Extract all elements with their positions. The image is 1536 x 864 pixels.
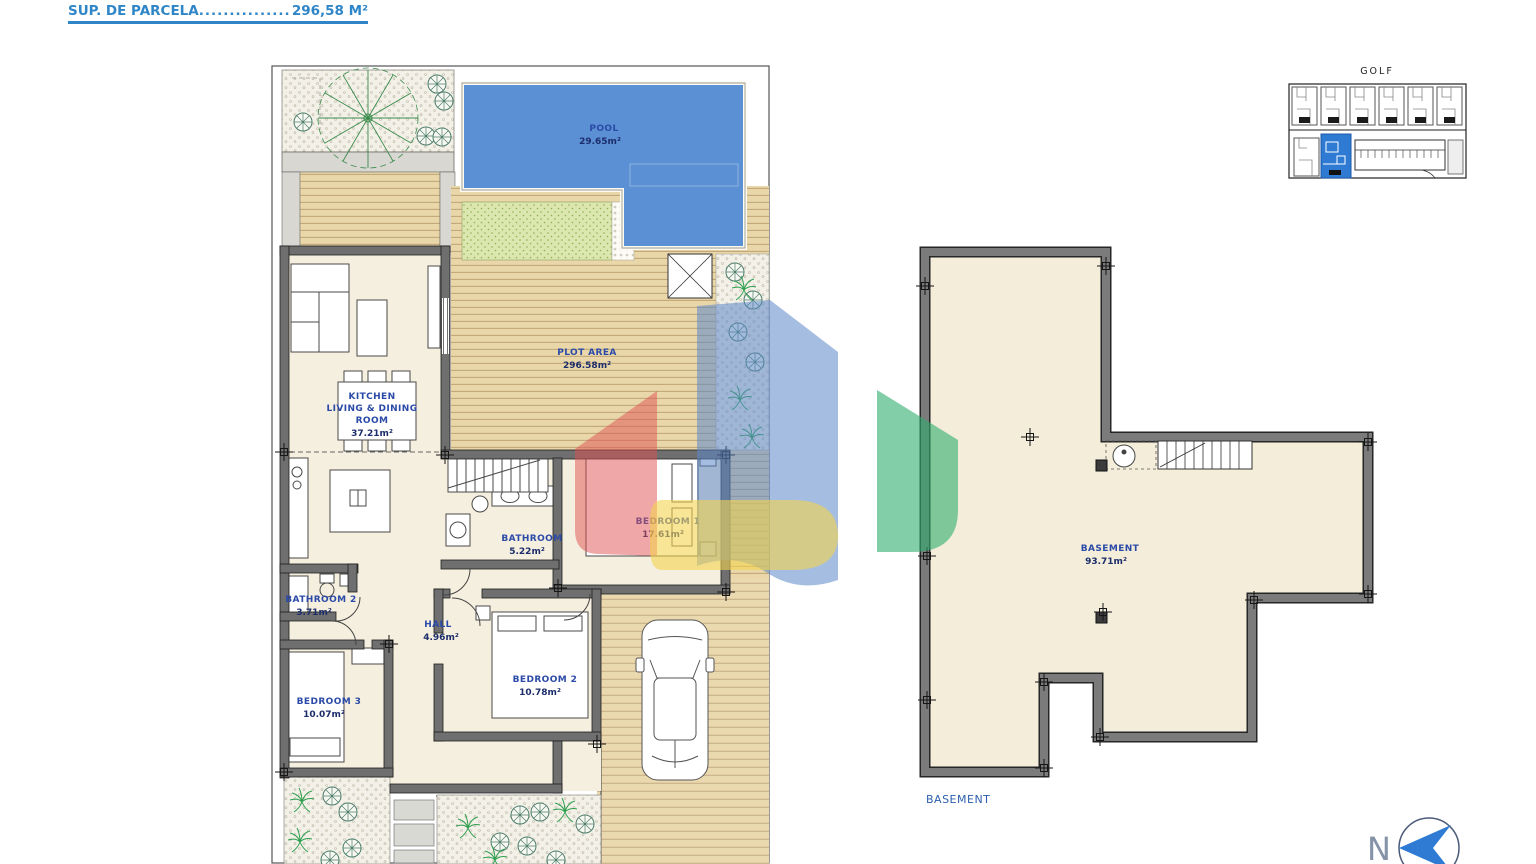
plot-area-value: 296.58m² xyxy=(563,361,611,371)
header-line2: SUP. DE PARCELA ........................… xyxy=(68,3,368,19)
bedroom2-area: 10.78m² xyxy=(519,688,561,698)
bush-icon xyxy=(294,113,312,131)
hall-label: HALL xyxy=(424,620,452,630)
kitchen-label-1: KITCHEN xyxy=(348,392,395,402)
pillar xyxy=(1096,460,1107,471)
north-arrow: N xyxy=(1365,798,1490,864)
bush-icon xyxy=(433,128,451,146)
golf-site-inset: GOLF xyxy=(1285,60,1470,185)
kitchen-label-3: ROOM xyxy=(356,416,389,426)
bathroom1-area: 5.22m² xyxy=(509,547,545,557)
tv-bench xyxy=(428,266,440,348)
header-parcela-label: SUP. DE PARCELA xyxy=(68,3,199,19)
pool-label: POOL xyxy=(589,124,618,134)
kitchen-area: 37.21m² xyxy=(351,429,393,439)
upper-terrace xyxy=(282,172,455,252)
bedroom1-bed xyxy=(586,452,716,556)
bathroom1-label: BATHROOM xyxy=(501,534,562,544)
bush-icon xyxy=(417,127,435,145)
golf-inset-title: GOLF xyxy=(1360,66,1394,77)
outdoor-shower xyxy=(668,254,712,298)
basement-plan: BASEMENT 93.71m² BASEMENT xyxy=(895,225,1425,825)
front-garden xyxy=(282,68,454,172)
bathroom2-label: BATHROOM 2 xyxy=(285,595,356,605)
lawn xyxy=(462,202,634,260)
kitchen-label-2: LIVING & DINING xyxy=(326,404,417,414)
bush-icon xyxy=(435,92,453,110)
basement-outline xyxy=(925,252,1368,772)
plot-area-label: PLOT AREA xyxy=(557,348,617,358)
plot-area-header: PLOT AREA/ SUP. DE PARCELA .............… xyxy=(68,0,368,24)
coffee-table xyxy=(357,300,387,356)
bedroom2-bed xyxy=(476,606,588,718)
basement-stairs xyxy=(1106,441,1252,469)
ground-floor-plan: POOL 29.65m² PLOT AREA 296.58m² KITCHEN … xyxy=(268,60,776,864)
header-dots: .............................. xyxy=(199,3,292,19)
bedroom1-area: 17.61m² xyxy=(642,530,684,540)
pillar xyxy=(1096,612,1107,623)
bedroom1-label: BEDROOM 1 xyxy=(636,517,701,527)
sofa xyxy=(291,264,349,352)
side-garden xyxy=(716,254,769,450)
floor-plan-sheet: PLOT AREA/ SUP. DE PARCELA .............… xyxy=(0,0,1536,864)
pool-area: 29.65m² xyxy=(579,137,621,147)
header-parcela-value: 296,58 M² xyxy=(292,3,368,19)
bedroom2-label: BEDROOM 2 xyxy=(513,675,578,685)
basement-caption: BASEMENT xyxy=(926,793,990,806)
bedroom3-label: BEDROOM 3 xyxy=(297,697,362,707)
bathroom2-area: 3.71m² xyxy=(296,608,332,618)
car xyxy=(636,620,714,780)
north-letter: N xyxy=(1367,830,1391,864)
bedroom3-area: 10.07m² xyxy=(303,710,345,720)
basement-label: BASEMENT xyxy=(1081,544,1140,554)
hall-area: 4.96m² xyxy=(423,633,459,643)
bush-icon xyxy=(428,75,446,93)
stairs xyxy=(448,456,548,492)
north-arrow-pointer xyxy=(1399,825,1451,864)
basement-area: 93.71m² xyxy=(1085,557,1127,567)
